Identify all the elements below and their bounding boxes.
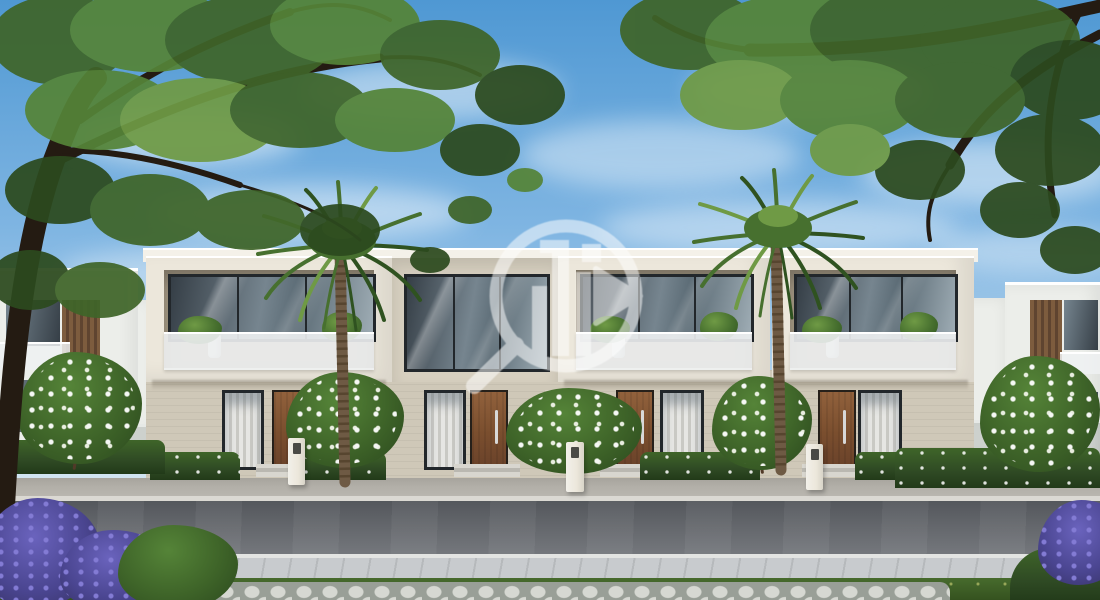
tree-left bbox=[0, 0, 580, 540]
hex-stone-path bbox=[110, 582, 950, 600]
scene-render bbox=[0, 0, 1100, 600]
hedge-ball bbox=[118, 525, 238, 600]
tree-right bbox=[600, 0, 1100, 300]
